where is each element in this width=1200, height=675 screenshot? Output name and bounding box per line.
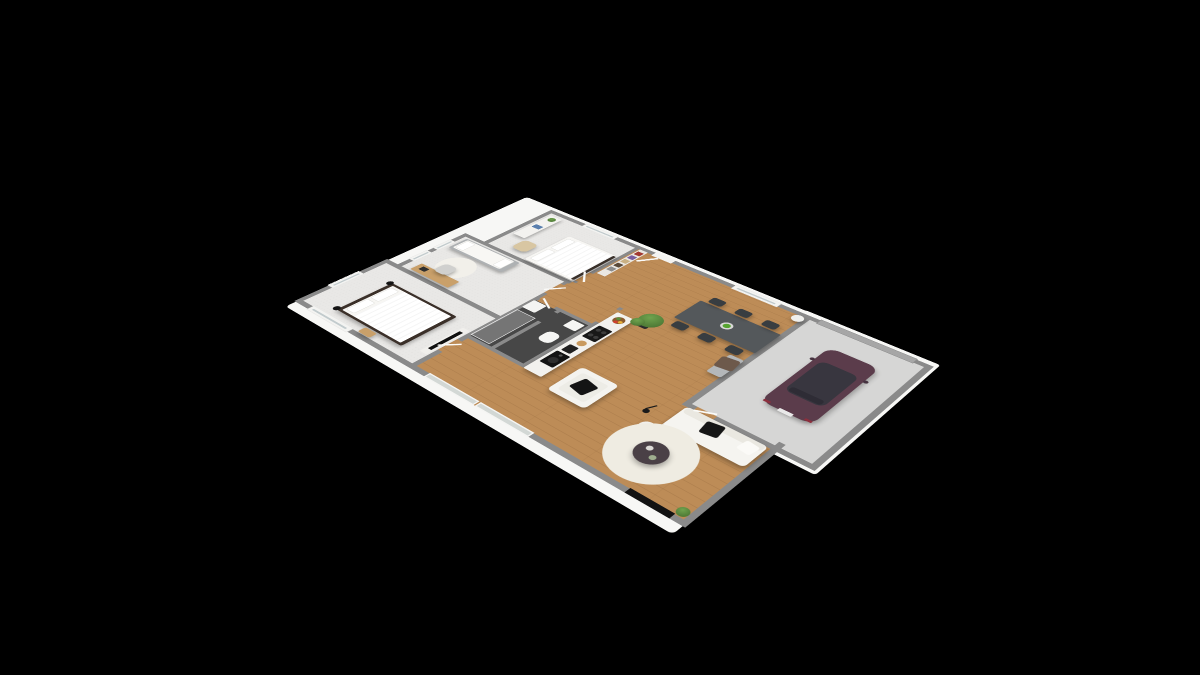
- floor-plan-3d: [250, 194, 966, 605]
- render-canvas: [0, 0, 1200, 675]
